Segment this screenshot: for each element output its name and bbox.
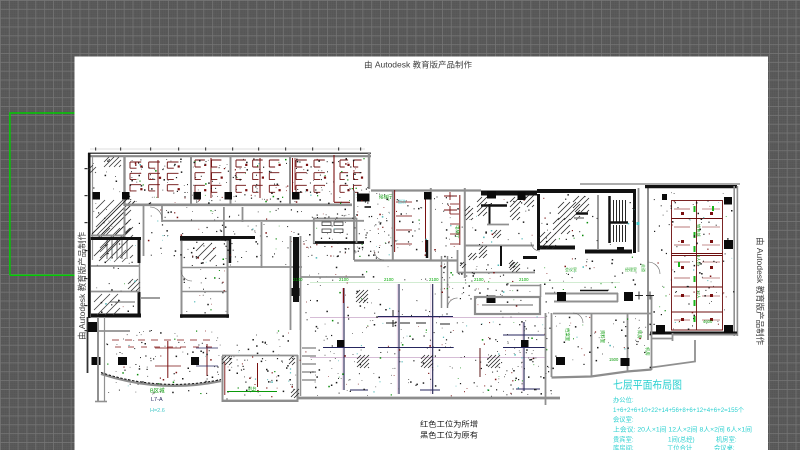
svg-text:资料室: 资料室 [599, 330, 606, 344]
svg-text:会议室:: 会议室: [613, 415, 634, 424]
svg-text:B区域: B区域 [150, 387, 165, 395]
svg-text:会议桌:: 会议桌: [714, 443, 735, 450]
svg-text:12人: 12人 [696, 290, 701, 300]
svg-text:贵宾室:: 贵宾室: [613, 435, 634, 444]
svg-text:2100: 2100 [429, 277, 439, 282]
svg-text:七层平面布局图: 七层平面布局图 [613, 379, 682, 392]
svg-text:由 Autodesk 教育版产品制作: 由 Autodesk 教育版产品制作 [364, 60, 472, 70]
svg-text:上会议: 20人×1间 12人×2间 8人×2间 6人×1: 上会议: 20人×1间 12人×2间 8人×2间 6人×1间 [613, 425, 752, 434]
svg-text:2100: 2100 [474, 277, 484, 282]
svg-text:候梯厅: 候梯厅 [379, 194, 393, 201]
svg-text:前台: 前台 [248, 385, 256, 392]
svg-text:黑色工位为原有: 黑色工位为原有 [420, 431, 478, 440]
svg-text:机房室:: 机房室: [716, 435, 737, 444]
svg-text:盥洗: 盥洗 [398, 198, 406, 204]
svg-text:1+6+2+6+10+22+14+56+8+6+12+4+6: 1+6+2+6+10+22+14+56+8+6+12+4+6+2=155个 [613, 406, 745, 414]
svg-text:销售部: 销售部 [695, 224, 702, 237]
svg-text:2100: 2100 [384, 277, 394, 282]
svg-text:库房间:: 库房间: [613, 443, 634, 450]
svg-text:机房: 机房 [644, 347, 651, 356]
svg-text:走道: 走道 [641, 264, 647, 272]
svg-text:1间(总经): 1间(总经) [668, 435, 695, 444]
svg-text:由 Autodesk 教育版产品制作: 由 Autodesk 教育版产品制作 [77, 231, 87, 340]
svg-text:由 Autodesk 教育版产品制作: 由 Autodesk 教育版产品制作 [755, 237, 765, 346]
svg-text:L7-A: L7-A [151, 397, 163, 403]
svg-text:红色工位为所增: 红色工位为所增 [420, 420, 478, 429]
svg-text:1500: 1500 [609, 357, 619, 362]
svg-text:经理室: 经理室 [625, 266, 637, 272]
svg-text:工位合计: 工位合计 [667, 443, 693, 450]
svg-text:4600: 4600 [703, 319, 713, 324]
svg-text:办公位:: 办公位: [613, 395, 634, 404]
svg-text:档案室: 档案室 [564, 328, 571, 342]
svg-text:H=2.6: H=2.6 [150, 408, 165, 414]
svg-text:2100: 2100 [519, 277, 529, 282]
